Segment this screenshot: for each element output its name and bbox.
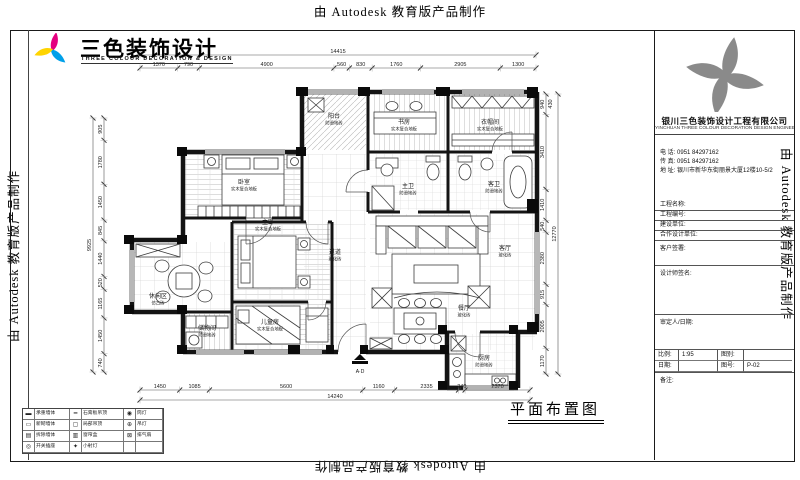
- legend-symbol-3-1: ✦: [70, 442, 82, 453]
- svg-text:1300: 1300: [512, 62, 524, 68]
- entry-marker-label: A·D: [346, 369, 374, 375]
- dining-table-icon: [394, 299, 446, 344]
- legend-symbol-0-0: ▬: [23, 409, 35, 420]
- address-value: 银川市新华东街丽景大厦12楼10-5/2: [677, 168, 773, 174]
- remark-cell: 备注:: [655, 373, 794, 461]
- brand-subtitle: THREE COLOUR DECORATION & DESIGN: [81, 56, 233, 64]
- sheet-label: 图号:: [718, 361, 744, 372]
- company-logo: [655, 30, 794, 116]
- company-name-en: YINCHUAN THREE COLOUR DECORATION DESIGN …: [655, 126, 794, 135]
- svg-text:9925: 9925: [87, 239, 93, 251]
- svg-text:1160: 1160: [373, 384, 385, 390]
- svg-text:2370: 2370: [491, 384, 503, 390]
- svg-text:940: 940: [540, 100, 546, 109]
- field-project-no: 工程编号:: [655, 211, 794, 221]
- title-block: 银川三色装饰设计工程有限公司 YINCHUAN THREE COLOUR DEC…: [654, 30, 794, 460]
- legend-symbol-0-1: ━: [70, 409, 82, 420]
- svg-text:740: 740: [98, 358, 104, 367]
- date-value: [679, 361, 718, 372]
- sheet-value: P-02: [744, 361, 792, 372]
- plan-title: 平面布置图: [508, 398, 604, 424]
- svg-text:905: 905: [98, 125, 104, 134]
- shoe-cabinet-icon: [370, 338, 392, 349]
- phone-row: 电 话: 0951 84297162: [660, 149, 794, 158]
- svg-text:560: 560: [337, 62, 346, 68]
- svg-text:240: 240: [457, 384, 466, 390]
- wardrobe-icon: [198, 206, 300, 218]
- svg-text:1780: 1780: [98, 156, 104, 168]
- svg-text:1450: 1450: [154, 384, 166, 390]
- legend-symbol-3-0: ◎: [23, 442, 35, 453]
- svg-text:2335: 2335: [420, 384, 432, 390]
- svg-text:830: 830: [356, 62, 365, 68]
- svg-text:3410: 3410: [540, 146, 546, 158]
- designer-signature-cell: 设计师签名:: [655, 266, 794, 315]
- svg-text:2005: 2005: [540, 320, 546, 332]
- type-value: [744, 350, 792, 361]
- legend-label-2-2: 排气扇: [136, 431, 163, 442]
- type-label: 图别:: [718, 350, 744, 361]
- svg-text:915: 915: [540, 290, 546, 299]
- svg-text:14240: 14240: [327, 394, 342, 400]
- svg-text:1440: 1440: [98, 253, 104, 265]
- legend-label-3-2: [136, 442, 163, 453]
- legend-symbol-0-2: ◉: [124, 409, 136, 420]
- svg-text:1165: 1165: [98, 298, 104, 310]
- legend-label-0-0: 承重墙体: [35, 409, 70, 420]
- svg-text:1450: 1450: [98, 330, 104, 342]
- field-project-name: 工程名称:: [655, 201, 794, 211]
- legend-symbol-2-1: ▥: [70, 431, 82, 442]
- legend-label-1-1: 局部吊顶: [82, 420, 124, 431]
- kids-bed-icon: [236, 306, 328, 344]
- svg-text:2905: 2905: [454, 62, 466, 68]
- legend-label-0-1: 石膏板吊顶: [82, 409, 124, 420]
- svg-text:4900: 4900: [261, 62, 273, 68]
- legend-label-1-2: 吊灯: [136, 420, 163, 431]
- scale-label: 比例:: [655, 350, 679, 361]
- svg-text:430: 430: [548, 99, 554, 108]
- date-label: 日期:: [655, 361, 679, 372]
- svg-text:1760: 1760: [390, 62, 402, 68]
- svg-text:12770: 12770: [552, 226, 558, 241]
- scale-value: 1:95: [679, 350, 718, 361]
- legend-symbol-1-1: ▢: [70, 420, 82, 431]
- ac-unit-icon: [308, 98, 324, 112]
- svg-text:520: 520: [98, 278, 104, 287]
- svg-text:1085: 1085: [188, 384, 200, 390]
- entry-marker-icon: [352, 354, 368, 364]
- svg-text:1410: 1410: [540, 199, 546, 211]
- address-row: 地 址: 银川市新华东街丽景大厦12楼10-5/2: [660, 167, 794, 176]
- brand-logo: 三色装饰设计 THREE COLOUR DECORATION & DESIGN: [32, 33, 262, 65]
- legend-label-3-1: 小射灯: [82, 442, 124, 453]
- fax-value: 0951 84297162: [677, 159, 719, 165]
- pinwheel-logo-gray-icon: [665, 34, 785, 112]
- legend-symbol-1-0: ▭: [23, 420, 35, 431]
- svg-text:1450: 1450: [98, 196, 104, 208]
- field-co-designer: 合作设计单位:: [655, 231, 794, 241]
- legend-label-2-1: 窗帘盒: [82, 431, 124, 442]
- svg-text:2380: 2380: [540, 252, 546, 264]
- svg-text:5600: 5600: [280, 384, 292, 390]
- legend-symbol-1-2: ⊕: [124, 420, 136, 431]
- legend-label-1-0: 新砌墙体: [35, 420, 70, 431]
- scale-sheet-table: 比例: 1:95 图别: 日期: 图号: P-02: [655, 350, 794, 373]
- legend-label-0-2: 筒灯: [136, 409, 163, 420]
- legend-label-3-0: 开关插座: [35, 442, 70, 453]
- legend-symbol-3-2: [124, 442, 136, 453]
- field-owner: 建设单位:: [655, 221, 794, 231]
- legend-symbol-2-2: ⊠: [124, 431, 136, 442]
- svg-text:540: 540: [540, 222, 546, 231]
- dims-right: 9403410141054023809152005117012770430: [540, 92, 562, 377]
- svg-text:845: 845: [98, 226, 104, 235]
- company-contact: 电 话: 0951 84297162 传 真: 0951 84297162 地 …: [655, 135, 794, 201]
- legend-symbol-2-0: ▤: [23, 431, 35, 442]
- approver-cell: 审定人/日期:: [655, 315, 794, 350]
- dims-left: 905178014508451440520116514507409925: [87, 116, 108, 375]
- svg-text:1170: 1170: [540, 355, 546, 367]
- phone-value: 0951 84297162: [677, 150, 719, 156]
- legend-label-2-0: 拆除墙体: [35, 431, 70, 442]
- fax-row: 传 真: 0951 84297162: [660, 158, 794, 167]
- legend-table: ▬承重墙体━石膏板吊顶◉筒灯▭新砌墙体▢局部吊顶⊕吊灯▤拆除墙体▥窗帘盒⊠排气扇…: [22, 408, 164, 454]
- client-signature-cell: 客户签署:: [655, 241, 794, 266]
- pinwheel-logo-icon: [32, 33, 78, 65]
- svg-text:14415: 14415: [330, 49, 345, 55]
- company-name: 银川三色装饰设计工程有限公司: [655, 116, 794, 126]
